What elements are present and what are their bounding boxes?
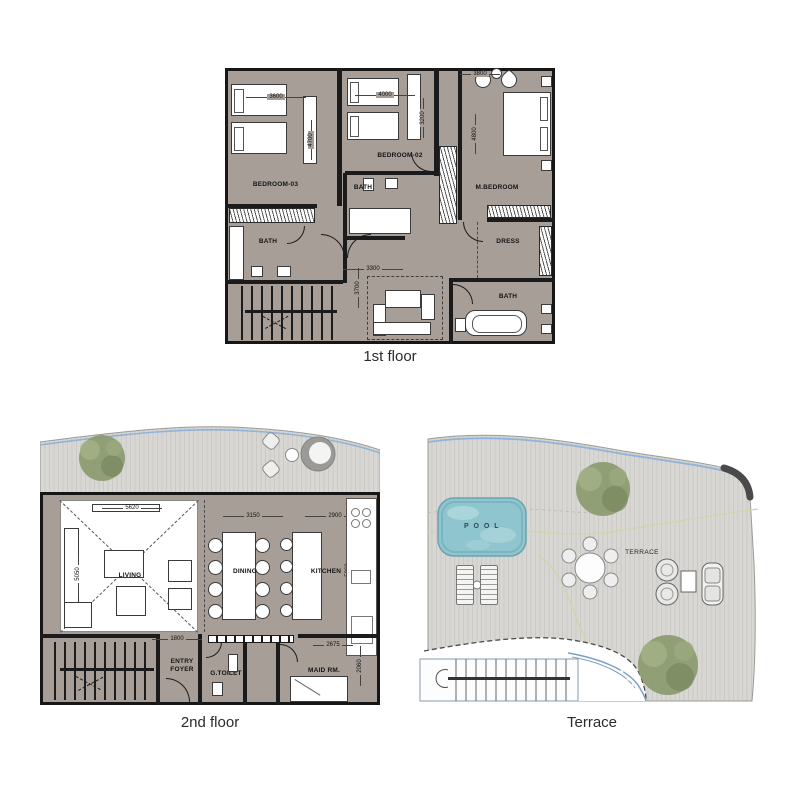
room-label-dining: DINING [215, 568, 275, 576]
dining-chair [255, 538, 270, 553]
dim-living-width: 5620 [102, 504, 162, 512]
floorplan-sheet: BEDROOM-03 3600 4700 BEDROOM-02 4000 320… [0, 0, 800, 800]
kitchen-island [292, 532, 322, 620]
pool-label: P O O L [438, 523, 526, 530]
bed-fold-line [294, 679, 320, 696]
staircase [46, 642, 154, 700]
wardrobe-hatch [487, 205, 551, 218]
caption-1st-floor: 1st floor [225, 348, 555, 365]
room-label-dress: DRESS [478, 238, 538, 246]
hob-burner [351, 519, 360, 528]
dim-mbedroom-height: 4800 [471, 114, 479, 154]
panel-1st-floor: BEDROOM-03 3600 4700 BEDROOM-02 4000 320… [225, 68, 555, 344]
dim-family-height: 3700 [354, 268, 362, 308]
caption-terrace: Terrace [418, 714, 766, 731]
room-label-bath-left: BATH [243, 238, 293, 246]
room-label-bath-center: BATH [338, 184, 388, 192]
sun-lounger [480, 565, 498, 605]
rug-table [116, 586, 146, 616]
bar-stool [280, 560, 293, 573]
bar-stool [280, 538, 293, 551]
room-label-maid: MAID RM. [298, 667, 350, 675]
bar-stool [280, 604, 293, 617]
vanity [229, 226, 244, 280]
caption-2nd-floor: 2nd floor [40, 714, 380, 731]
wardrobe-hatch [439, 146, 457, 224]
towel-rack [541, 304, 552, 314]
terrace-label: TERRACE [610, 549, 674, 556]
kitchen-sink [351, 570, 371, 584]
bed-pillow [540, 97, 548, 121]
wardrobe-hatch [539, 226, 552, 276]
room-label-entry-foyer: ENTRY FOYER [158, 658, 206, 673]
wall [487, 218, 555, 222]
dim-bedroom02-height: 3200 [419, 98, 427, 138]
dim-entry-width: 1800 [152, 635, 202, 643]
dim-family-width: 3300 [343, 265, 403, 273]
dim-bedroom02-width: 4000 [355, 91, 415, 99]
dim-mbedroom-width: 3800 [460, 70, 500, 78]
dining-chair [208, 582, 223, 597]
fridge [351, 616, 373, 644]
sun-lounger [456, 565, 474, 605]
table [385, 290, 421, 308]
chaise [64, 602, 92, 628]
wall [458, 68, 462, 220]
toilet [251, 266, 263, 277]
bed-master [503, 92, 551, 156]
bed-pillow [234, 89, 244, 113]
maid-bed [290, 676, 348, 702]
balcony-deck [40, 420, 380, 494]
tree [638, 635, 698, 695]
hob-burner [362, 519, 371, 528]
lounge-chair [421, 294, 435, 320]
armchair [168, 560, 192, 582]
bed [347, 112, 399, 140]
dim-maid-width: 2675 [313, 641, 353, 649]
wall [225, 280, 343, 284]
dim-living-height: 5050 [74, 554, 82, 594]
staircase [233, 286, 337, 340]
bed [231, 122, 287, 154]
nightstand [541, 76, 552, 87]
dining-chair [208, 538, 223, 553]
bathtub-shower [349, 208, 411, 234]
stair-rail [245, 310, 337, 313]
wall [298, 634, 380, 638]
sink [277, 266, 291, 277]
armchair [168, 588, 192, 610]
room-label-living: LIVING [95, 572, 165, 580]
dining-chair [255, 604, 270, 619]
wardrobe-hatch [229, 208, 315, 223]
nightstand [541, 160, 552, 171]
towel-rack [541, 324, 552, 334]
stair-rail [60, 668, 154, 671]
tree [576, 462, 630, 516]
bed-pillow [234, 127, 244, 151]
dim-maid-height: 2060 [356, 646, 364, 686]
bed-pillow [350, 116, 359, 137]
panel-terrace: P O O L TERRACE [418, 413, 766, 713]
bed-pillow [540, 127, 548, 151]
dim-dining-width: 3150 [223, 512, 283, 520]
room-label-bath-right: BATH [478, 293, 538, 301]
dim-bedroom03-height: 4700 [307, 120, 315, 160]
tree [79, 435, 125, 481]
bar-stool [280, 582, 293, 595]
room-label-bedroom03: BEDROOM-03 [233, 181, 318, 189]
wall [345, 171, 437, 175]
sink [228, 654, 238, 672]
room-label-gtoilet: G.TOILET [203, 670, 249, 678]
wall [453, 278, 555, 282]
dining-table [222, 532, 256, 620]
hob-burner [362, 508, 371, 517]
staircase [420, 659, 578, 701]
panel-2nd-floor: LIVING 5620 5050 DINING 3150 KITCHEN 290… [40, 420, 380, 720]
dining-chair [255, 582, 270, 597]
toilet [212, 682, 223, 696]
terrace-plan [418, 413, 766, 710]
bathtub-inner [472, 315, 522, 333]
dining-chair [208, 604, 223, 619]
room-label-mbedroom: M.BEDROOM [457, 184, 537, 192]
wall [40, 634, 160, 638]
hob-burner [351, 508, 360, 517]
dim-bedroom03-width: 3600 [246, 93, 306, 101]
open-boundary [204, 500, 205, 632]
sofa [373, 322, 431, 335]
toilet [455, 318, 466, 332]
